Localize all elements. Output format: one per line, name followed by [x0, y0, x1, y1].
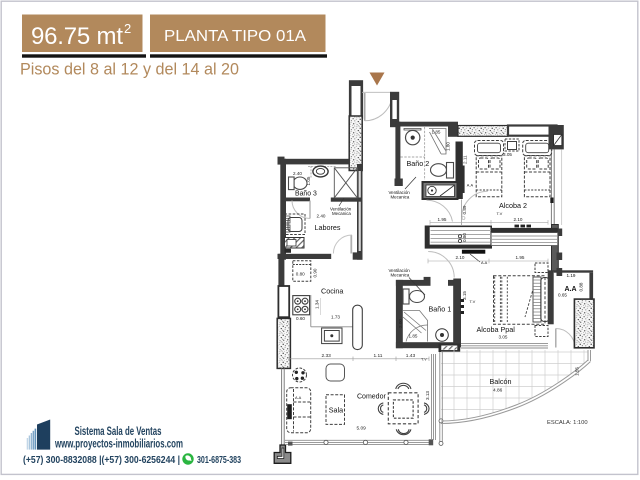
svg-text:Cocina: Cocina — [321, 287, 343, 296]
svg-text:301-6875-383: 301-6875-383 — [197, 454, 241, 466]
svg-text:1.85: 1.85 — [409, 334, 418, 339]
svg-text:2.40: 2.40 — [317, 214, 326, 219]
svg-text:4.86: 4.86 — [493, 388, 503, 394]
svg-text:3.05: 3.05 — [503, 152, 512, 157]
svg-text:3.13: 3.13 — [425, 391, 430, 400]
svg-text:www.proyectos-inmobiliarios.co: www.proyectos-inmobiliarios.com — [54, 437, 183, 451]
svg-text:Mecanica: Mecanica — [332, 211, 351, 216]
svg-text:0.89: 0.89 — [462, 205, 467, 214]
svg-text:1.55: 1.55 — [575, 367, 580, 376]
svg-text:2.10: 2.10 — [514, 217, 523, 222]
svg-text:Baño 2: Baño 2 — [407, 159, 430, 168]
svg-text:(+57) 300-8832088 |(+57) 300-: (+57) 300-8832088 |(+57) 300-6256244 | — [23, 454, 180, 466]
svg-text:0.90: 0.90 — [313, 268, 318, 277]
svg-text:1.43: 1.43 — [406, 353, 416, 359]
svg-text:0.80: 0.80 — [296, 272, 305, 277]
svg-text:2.11: 2.11 — [463, 155, 468, 164]
svg-text:3.05: 3.05 — [499, 335, 508, 340]
svg-text:Pisos del 8 al 12 y del 14 al: Pisos del 8 al 12 y del 14 al 20 — [20, 61, 239, 79]
svg-text:1.85: 1.85 — [432, 130, 441, 135]
svg-text:Comedor: Comedor — [357, 394, 386, 401]
svg-text:Mecanica: Mecanica — [391, 273, 410, 278]
svg-text:ESCALA: 1:100: ESCALA: 1:100 — [547, 420, 588, 426]
svg-text:2.33: 2.33 — [322, 353, 332, 359]
svg-text:2.00: 2.00 — [398, 319, 403, 328]
svg-text:3.15: 3.15 — [462, 291, 467, 300]
svg-text:5.09: 5.09 — [357, 426, 367, 432]
svg-text:2: 2 — [124, 21, 131, 36]
svg-text:A.A: A.A — [467, 183, 474, 188]
svg-text:2.10: 2.10 — [456, 255, 465, 260]
svg-text:96.75 mt: 96.75 mt — [31, 23, 123, 50]
svg-text:T.V: T.V — [497, 211, 503, 216]
svg-text:1.19: 1.19 — [567, 273, 576, 278]
svg-text:0.80: 0.80 — [462, 233, 467, 242]
svg-text:Baño 1: Baño 1 — [429, 305, 452, 314]
svg-text:Balcón: Balcón — [490, 377, 512, 386]
svg-text:0.60: 0.60 — [296, 316, 305, 321]
svg-text:1.11: 1.11 — [374, 353, 383, 359]
svg-text:0.65: 0.65 — [558, 293, 567, 298]
svg-text:2.40: 2.40 — [293, 171, 302, 176]
svg-text:1.73: 1.73 — [331, 314, 340, 319]
svg-text:Sala: Sala — [329, 406, 343, 415]
svg-text:1.95: 1.95 — [438, 217, 447, 222]
svg-text:1.34: 1.34 — [315, 300, 320, 309]
svg-text:0.88: 0.88 — [579, 282, 584, 291]
svg-text:Alcoba 2: Alcoba 2 — [499, 201, 527, 210]
svg-text:Baño 3: Baño 3 — [295, 191, 317, 198]
svg-text:A.A: A.A — [295, 395, 302, 400]
svg-text:PLANTA TIPO 01A: PLANTA TIPO 01A — [164, 28, 306, 45]
svg-text:1.80: 1.80 — [446, 142, 451, 151]
svg-text:Alcoba Ppal: Alcoba Ppal — [477, 325, 516, 334]
svg-text:T.V: T.V — [470, 299, 476, 304]
svg-text:Mecanica: Mecanica — [391, 195, 410, 200]
svg-text:1.95: 1.95 — [516, 255, 525, 260]
svg-text:Labores: Labores — [315, 223, 341, 232]
svg-text:1.05: 1.05 — [306, 176, 311, 185]
